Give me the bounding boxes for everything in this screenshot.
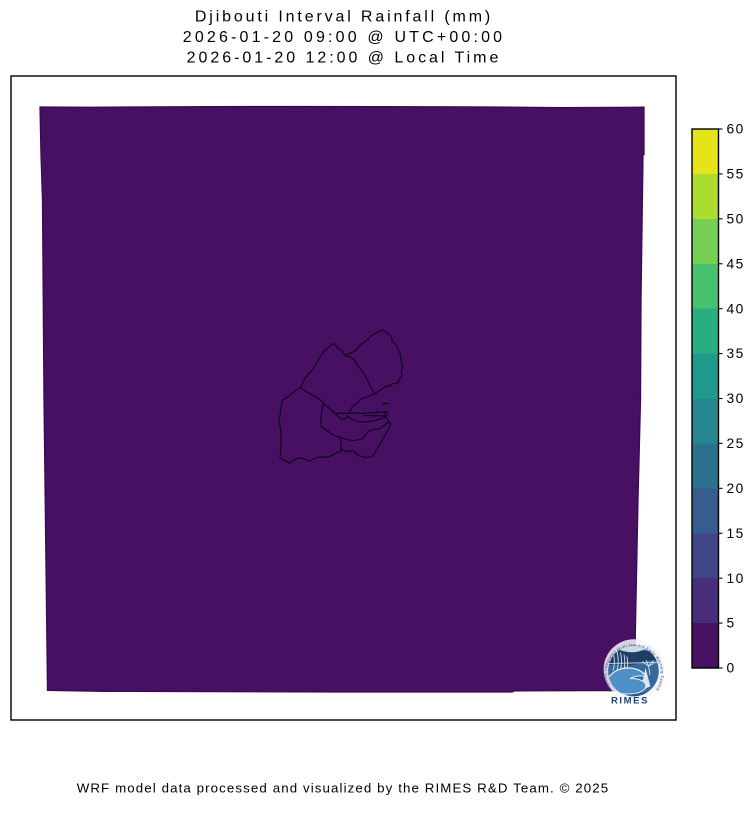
svg-text:40: 40 bbox=[727, 301, 745, 316]
svg-text:WRF model data processed and v: WRF model data processed and visualized … bbox=[77, 781, 610, 796]
svg-text:2026-01-20 09:00 @ UTC+00:00: 2026-01-20 09:00 @ UTC+00:00 bbox=[183, 29, 506, 46]
svg-text:2026-01-20 12:00 @ Local Time: 2026-01-20 12:00 @ Local Time bbox=[187, 50, 502, 67]
svg-text:RIMES: RIMES bbox=[611, 696, 649, 707]
svg-text:25: 25 bbox=[727, 436, 745, 451]
svg-text:10: 10 bbox=[727, 571, 745, 586]
svg-text:Djibouti Interval Rainfall (mm: Djibouti Interval Rainfall (mm) bbox=[195, 9, 493, 26]
svg-text:35: 35 bbox=[727, 346, 745, 361]
svg-text:0: 0 bbox=[727, 661, 736, 676]
svg-text:45: 45 bbox=[727, 256, 745, 271]
svg-text:5: 5 bbox=[727, 616, 736, 631]
svg-text:30: 30 bbox=[727, 391, 745, 406]
svg-text:20: 20 bbox=[727, 481, 745, 496]
svg-text:60: 60 bbox=[727, 122, 745, 137]
svg-text:55: 55 bbox=[727, 167, 745, 182]
svg-text:15: 15 bbox=[727, 526, 745, 541]
svg-text:50: 50 bbox=[727, 211, 745, 226]
